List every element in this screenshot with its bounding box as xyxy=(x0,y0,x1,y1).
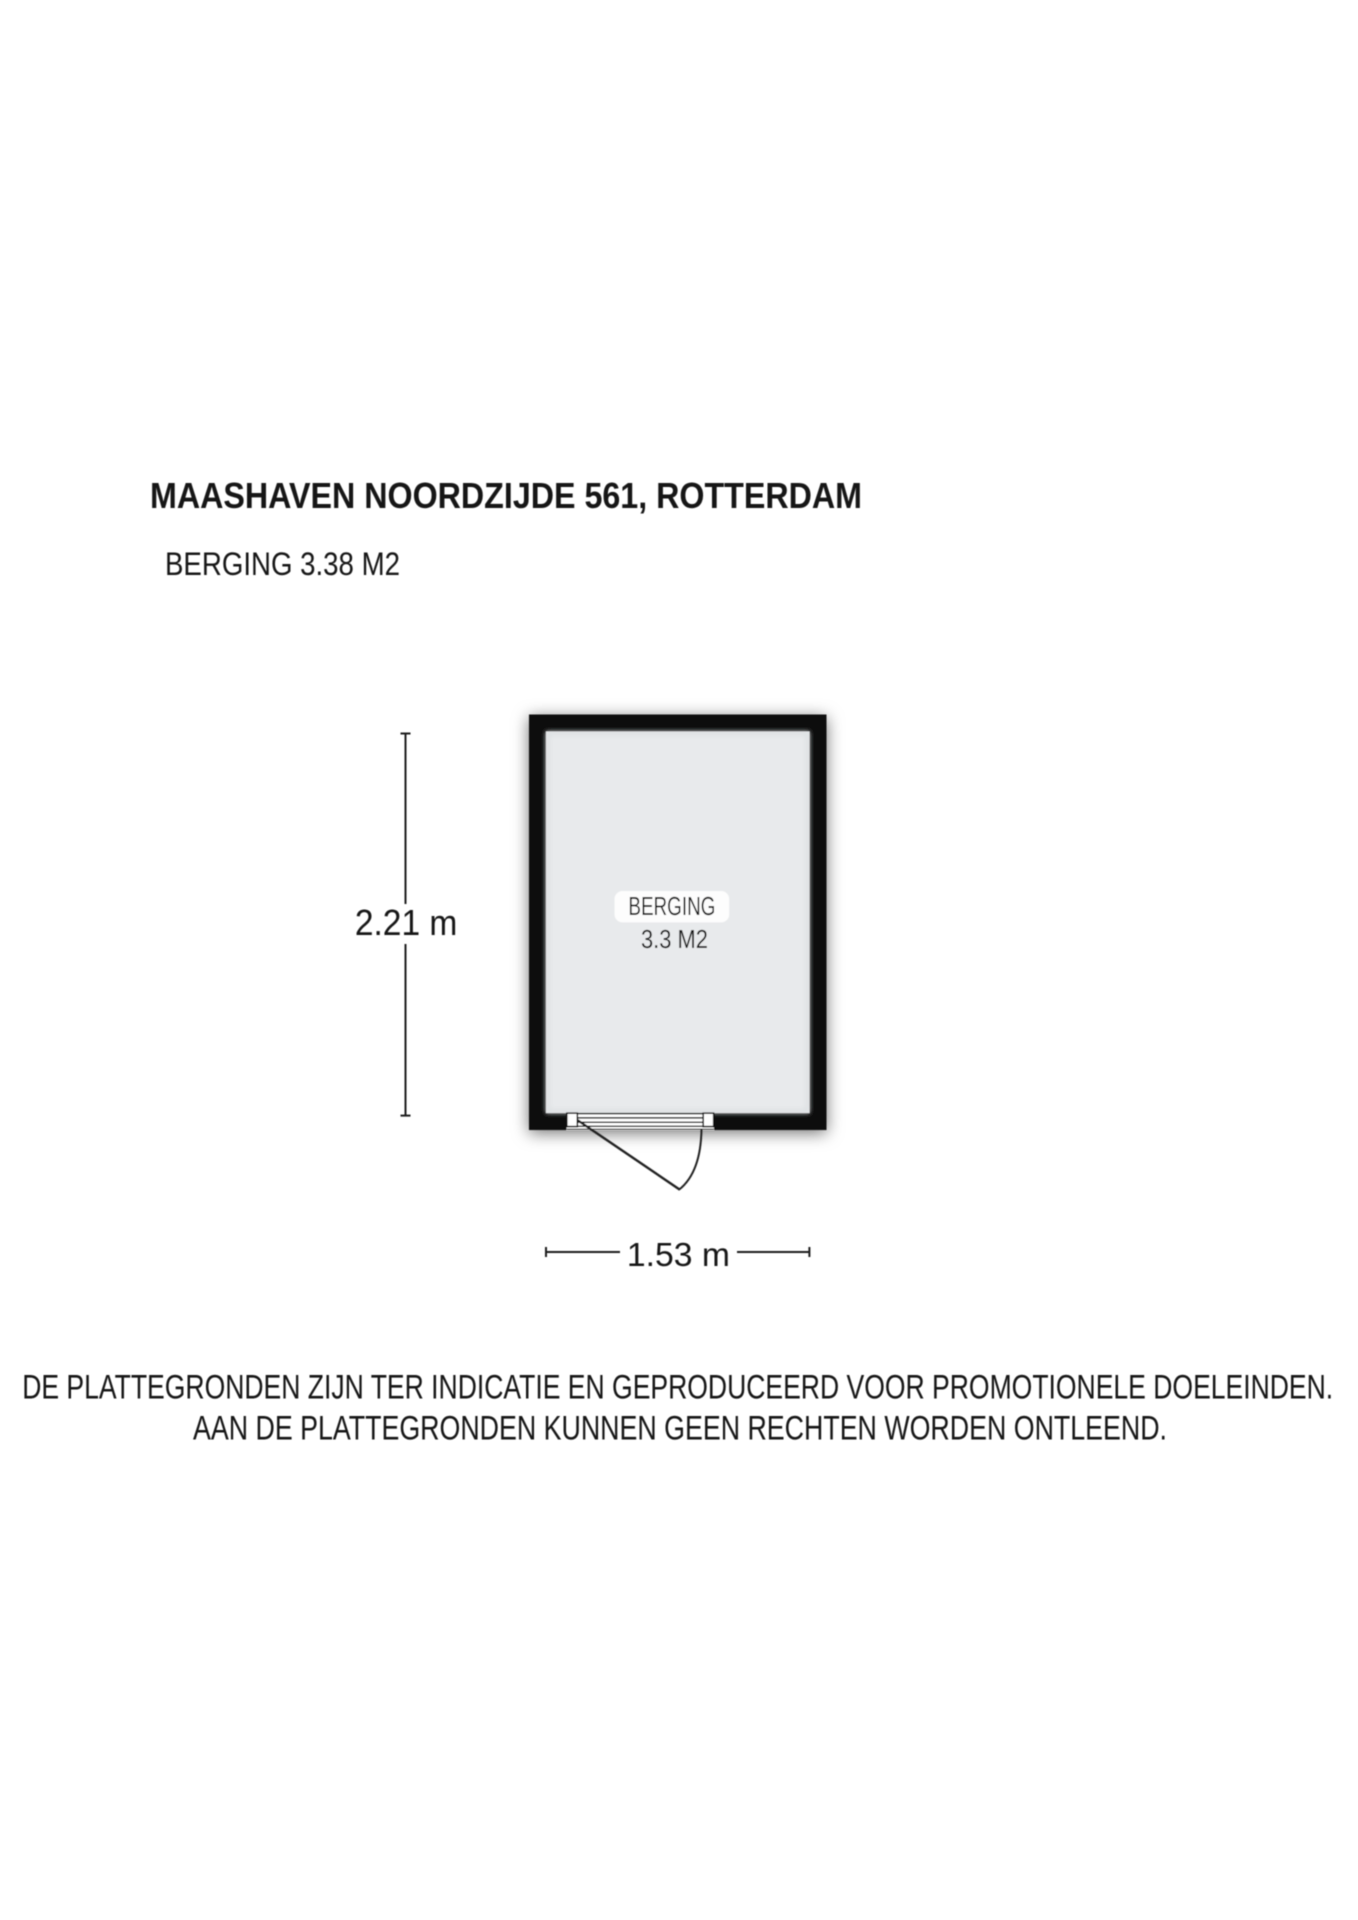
svg-text:BERGING: BERGING xyxy=(628,893,715,921)
svg-text:3.3 M2: 3.3 M2 xyxy=(641,924,708,954)
svg-text:MAASHAVEN NOORDZIJDE 561, ROTT: MAASHAVEN NOORDZIJDE 561, ROTTERDAM xyxy=(150,475,862,516)
svg-text:2.21 m: 2.21 m xyxy=(355,902,458,943)
svg-text:DE PLATTEGRONDEN ZIJN TER INDI: DE PLATTEGRONDEN ZIJN TER INDICATIE EN G… xyxy=(22,1368,1333,1406)
svg-text:1.53 m: 1.53 m xyxy=(627,1237,730,1274)
svg-text:BERGING 3.38 M2: BERGING 3.38 M2 xyxy=(165,545,400,582)
svg-text:AAN DE PLATTEGRONDEN KUNNEN GE: AAN DE PLATTEGRONDEN KUNNEN GEEN RECHTEN… xyxy=(193,1410,1167,1448)
